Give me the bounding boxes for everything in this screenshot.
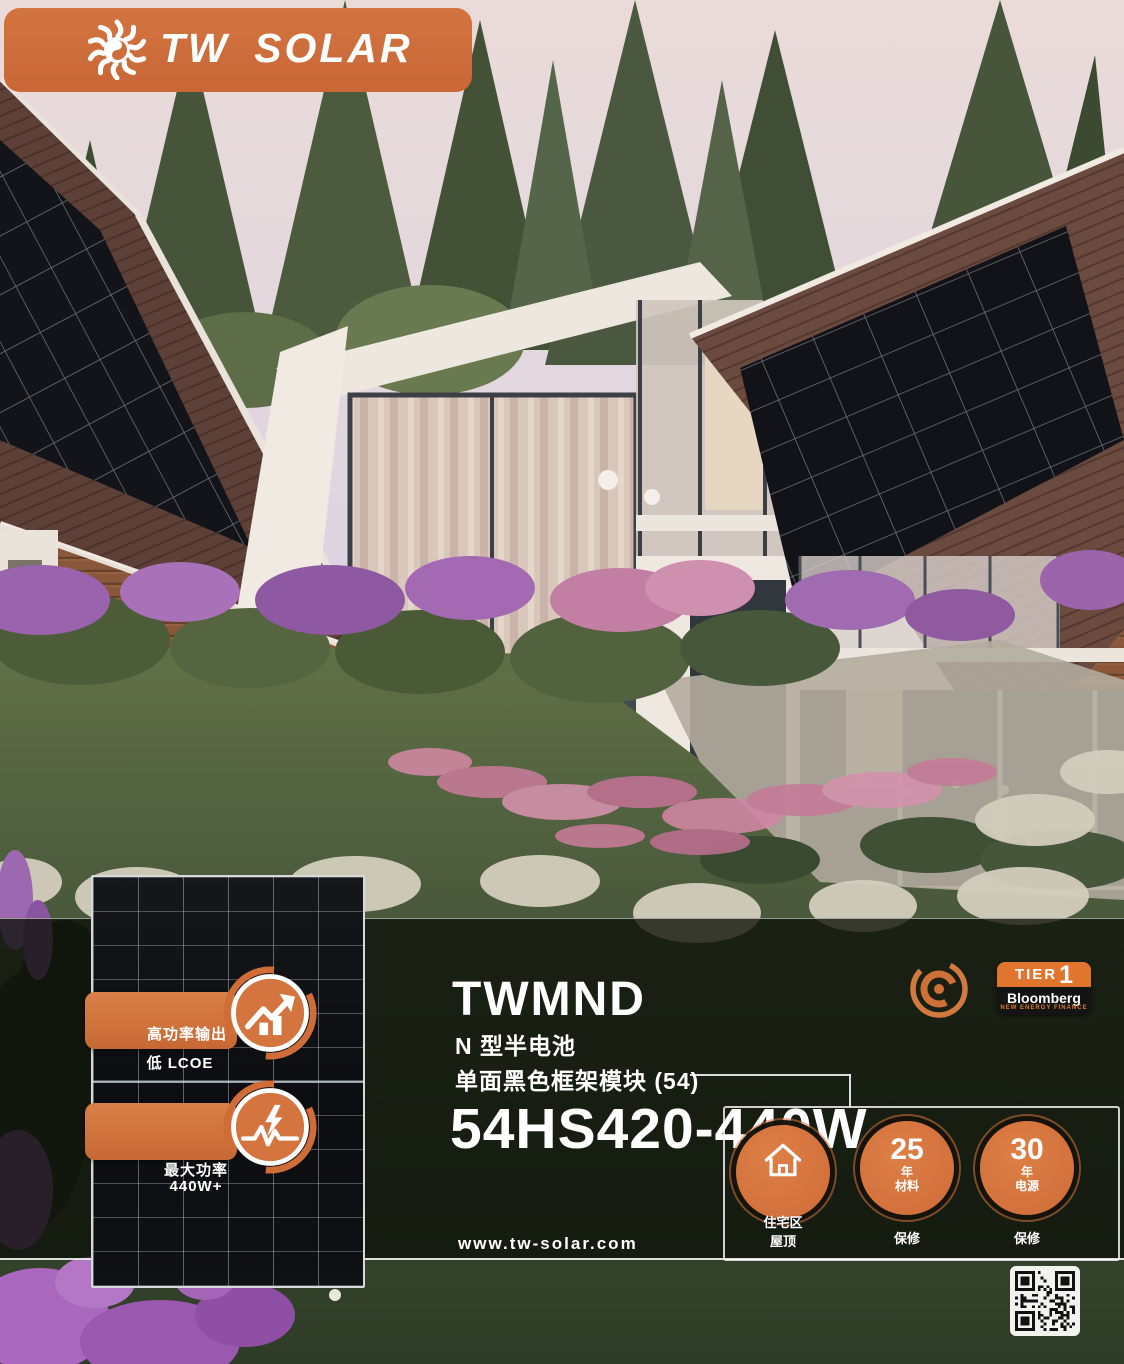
material-warranty-unit: 年 xyxy=(901,1165,913,1179)
power-warranty-category: 电源 xyxy=(1015,1179,1039,1193)
feature-circle-material-warranty: 25 年 材料 xyxy=(860,1121,954,1215)
material-warranty-caption: 保修 xyxy=(860,1228,954,1247)
tier1-bottom: Bloomberg NEW ENERGY FINANCE xyxy=(997,987,1091,1015)
product-desc-line: 单面黑色框架模块 (54) xyxy=(455,1062,699,1096)
callout-high-power-title: 高功率输出 xyxy=(147,1023,227,1044)
feature-circle-power-warranty: 30 年 电源 xyxy=(980,1121,1074,1215)
brand-logo-text: TW SOLAR xyxy=(160,8,413,92)
power-warranty-years: 30 xyxy=(1010,1135,1043,1165)
product-type-line: N 型半电池 xyxy=(455,1027,576,1061)
website-url: www.tw-solar.com xyxy=(458,1234,638,1254)
callout-high-power-subtitle: 低 LCOE xyxy=(133,1052,227,1073)
material-warranty-years: 25 xyxy=(890,1135,923,1165)
tier-label: TIER xyxy=(1015,966,1057,983)
power-warranty-caption: 保修 xyxy=(980,1228,1074,1247)
sun-swirl-logo-icon xyxy=(82,14,148,80)
power-pulse-icon xyxy=(222,1079,318,1175)
tier1-bloomberg-badge: TIER 1 Bloomberg NEW ENERGY FINANCE xyxy=(997,962,1091,1015)
house-icon xyxy=(761,1139,805,1181)
residential-label: 住宅区 xyxy=(736,1212,830,1231)
feature-circle-residential: 住宅区 xyxy=(736,1125,830,1219)
growth-chart-icon xyxy=(222,965,318,1061)
solar-product-poster: 高功率输出 低 LCOE 最大功率 440W+ TWMND N 型半电池 单面黑… xyxy=(0,0,1124,1364)
certification-swirl-logo xyxy=(908,958,970,1020)
callout-max-power-subtitle: 440W+ xyxy=(146,1178,246,1195)
callout-high-power: 高功率输出 xyxy=(85,992,237,1049)
material-warranty-category: 材料 xyxy=(895,1179,919,1193)
qr-code xyxy=(1010,1266,1080,1336)
bloomberg-sub-label: NEW ENERGY FINANCE xyxy=(1000,1005,1087,1012)
callout-max-power xyxy=(85,1103,237,1160)
product-series-title: TWMND xyxy=(452,972,646,1027)
residential-caption: 屋顶 xyxy=(736,1231,830,1250)
tier-number: 1 xyxy=(1059,965,1073,985)
power-warranty-unit: 年 xyxy=(1021,1165,1033,1179)
qr-code-pattern xyxy=(1015,1271,1075,1331)
tier1-top: TIER 1 xyxy=(997,962,1091,987)
brand-banner: TW SOLAR xyxy=(4,8,472,92)
decorative-connector-line xyxy=(690,1074,851,1076)
bloomberg-label: Bloomberg xyxy=(1007,991,1081,1005)
